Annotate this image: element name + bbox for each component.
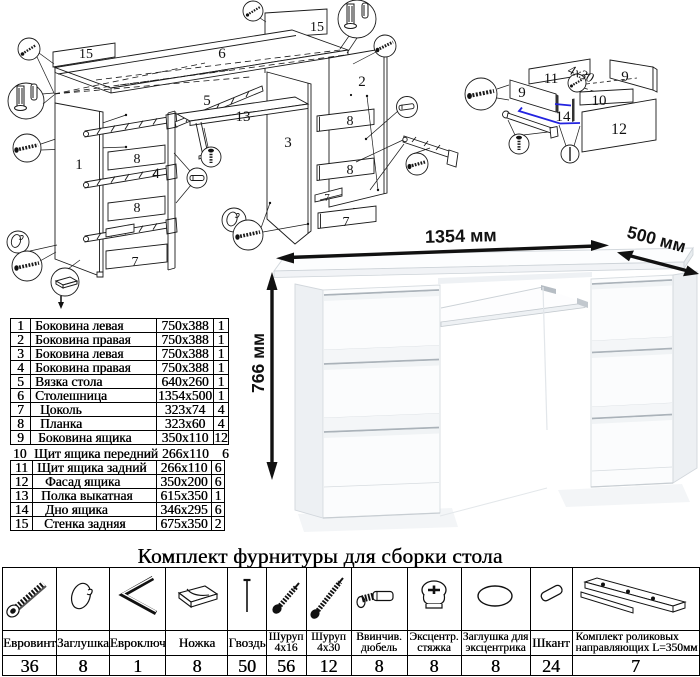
svg-text:15: 15 — [310, 20, 324, 35]
svg-text:7: 7 — [324, 192, 330, 204]
svg-text:15: 15 — [79, 47, 93, 62]
svg-text:6: 6 — [218, 46, 226, 62]
svg-text:3: 3 — [284, 135, 292, 151]
svg-text:4: 4 — [152, 166, 160, 182]
svg-text:8: 8 — [347, 163, 354, 178]
svg-text:7: 7 — [343, 215, 350, 230]
svg-text:1: 1 — [75, 157, 83, 173]
svg-text:8: 8 — [347, 114, 354, 129]
svg-text:14: 14 — [556, 109, 572, 125]
svg-text:7: 7 — [132, 255, 139, 270]
svg-text:12: 12 — [611, 121, 627, 138]
svg-text:2: 2 — [358, 74, 366, 90]
svg-text:5: 5 — [203, 93, 211, 109]
svg-text:9: 9 — [621, 69, 629, 85]
svg-text:8: 8 — [134, 152, 141, 167]
svg-text:1354 мм: 1354 мм — [425, 225, 497, 247]
svg-text:13: 13 — [236, 109, 251, 125]
svg-text:10: 10 — [592, 93, 607, 109]
svg-text:8: 8 — [134, 201, 141, 216]
svg-text:11: 11 — [544, 71, 558, 87]
svg-text:766 мм: 766 мм — [248, 333, 268, 393]
svg-text:9: 9 — [518, 85, 526, 101]
